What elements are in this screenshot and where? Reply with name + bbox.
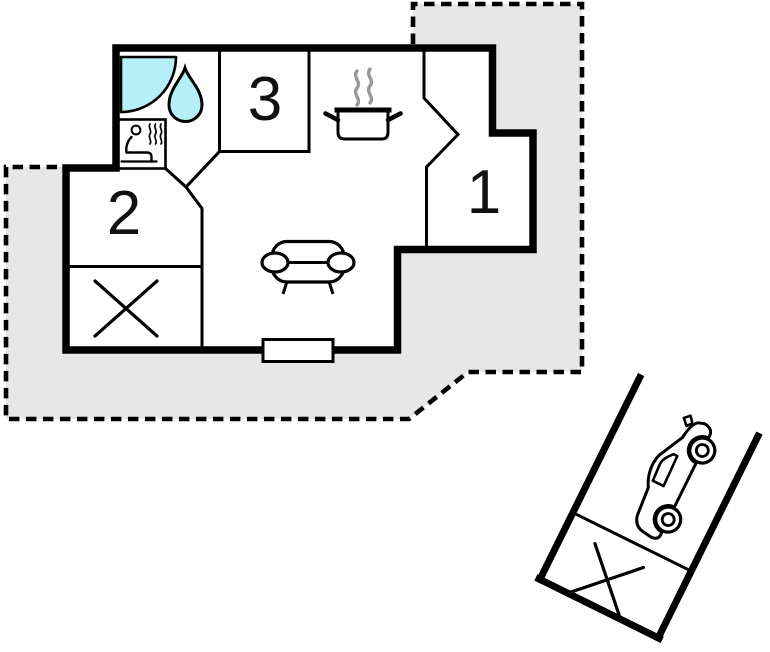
terrace-door: [263, 340, 333, 362]
car-icon: [623, 410, 725, 546]
carport-storage-cross-icon: [571, 544, 643, 616]
room-label-3: 3: [248, 69, 282, 131]
room-label-2: 2: [107, 183, 141, 245]
carport: [534, 373, 763, 643]
room-label-1: 1: [467, 162, 501, 224]
cooking-pot-icon: [326, 110, 401, 139]
floorplan-canvas: 1 2 3: [0, 0, 770, 652]
floorplan-svg: [0, 0, 770, 652]
